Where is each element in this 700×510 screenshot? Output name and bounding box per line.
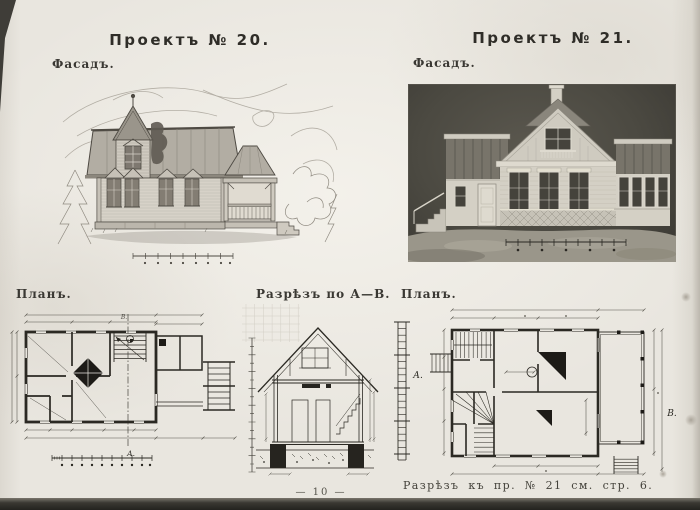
scanned-book-page: Проектъ № 20. Проектъ № 21. Фасадъ. Фаса… [0,0,700,510]
section-label: Разрѣзъ по А—В. [256,287,366,301]
central-block [496,85,620,226]
house-base [95,222,225,229]
veranda [598,331,644,445]
entry-steps-right [614,456,638,474]
age-spot [681,292,691,302]
page-number: — 10 — [294,487,348,498]
left-steps [414,193,446,232]
small-stove [536,410,552,426]
house-20 [85,94,299,263]
title-project-20: Проектъ № 20. [80,31,300,49]
ladder-scale [394,322,410,460]
ground-shadow [85,231,297,244]
foundation-pier-left [270,444,286,468]
plan-drawing-project-21: А. В. [386,296,686,486]
page-right-edge [692,0,700,510]
plan-drawing-project-20: В. А. [10,306,240,478]
house-section [256,328,378,468]
plan20-marker-a: А. [126,449,135,458]
title-project-21: Проектъ № 21. [443,29,663,47]
stairs [114,332,146,362]
plan20-scale-bar [52,455,152,466]
stairs-section [336,398,360,434]
porch-steps-plan [156,362,235,410]
foundation-pier-right [348,444,364,468]
page-bottom-edge [0,498,700,510]
section-drawing [242,302,382,480]
faint-grid [242,304,300,342]
facade-label-project-21: Фасадъ. [413,56,476,70]
right-wing [614,139,672,226]
photo-house-21 [408,84,676,262]
scan-corner-shadow [0,0,20,112]
age-spot [659,470,667,478]
partitions [452,330,598,456]
age-spot [685,414,697,426]
scale-bar [133,253,233,264]
facade-photo-project-21 [408,84,676,262]
vertical-ruler [249,338,256,472]
plan21-marker-b: В. [666,409,677,419]
plan20-marker-b: В. [120,314,127,321]
stairs-upper [454,332,492,358]
facade-drawing-project-20 [55,74,345,286]
plan-label-project-20: Планъ. [16,287,72,301]
main-roof [87,128,241,175]
entry-porch-left [430,354,452,372]
plan21-marker-a: А. [412,371,423,381]
facade-label-project-20: Фасадъ. [52,57,115,71]
stairs-winder [452,392,494,452]
big-stove [538,352,566,380]
